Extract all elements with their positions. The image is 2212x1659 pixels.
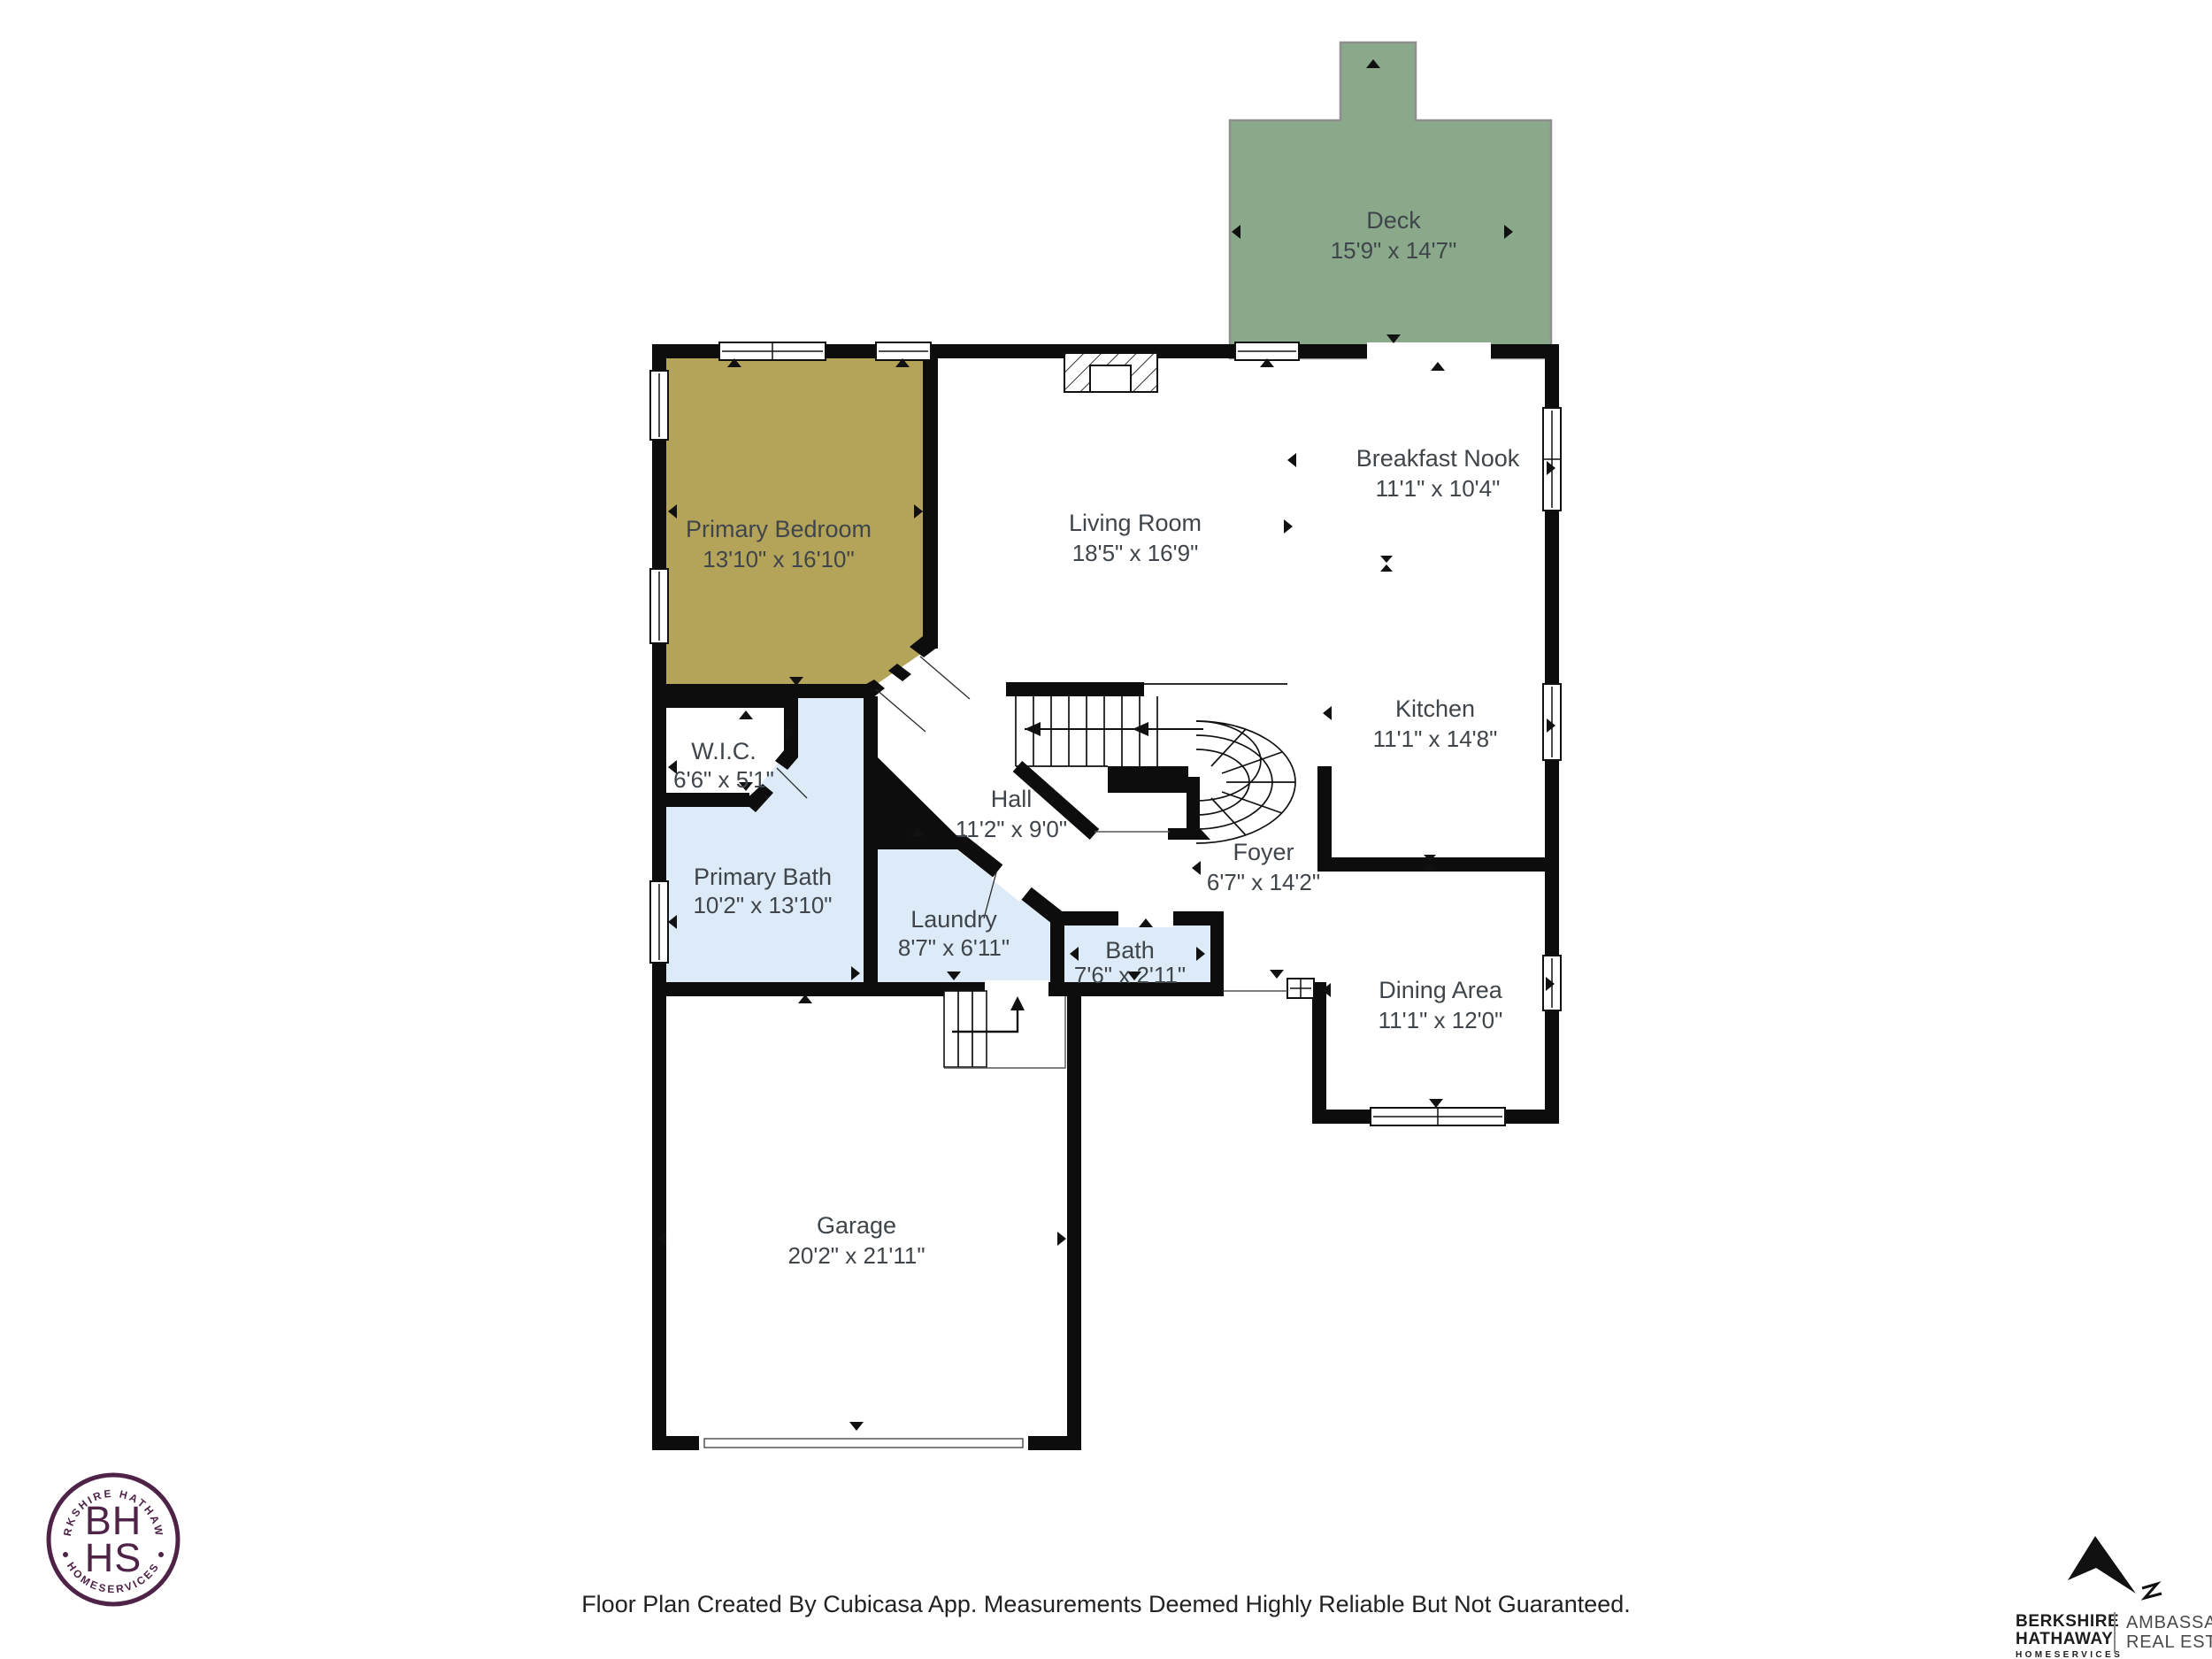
room-label-dining-area: Dining Area 11'1" x 12'0" xyxy=(1379,977,1503,1033)
room-name: Foyer xyxy=(1233,839,1294,865)
room-name: Bath xyxy=(1105,937,1155,964)
wall-stairs-top xyxy=(1006,682,1144,696)
room-name: Primary Bedroom xyxy=(686,516,872,542)
room-name: Deck xyxy=(1366,207,1421,234)
wall-garage-right xyxy=(1067,996,1081,1450)
wall-wic-top xyxy=(652,696,798,708)
brokerage-logo: BERKSHIRE HATHAWAY HOMESERVICES AMBASSAD… xyxy=(2016,1536,2212,1659)
deck-floor xyxy=(1230,42,1551,358)
bhhs-seal-dot-right xyxy=(158,1552,164,1557)
direction-marker-icon xyxy=(849,1422,864,1431)
bhhs-monogram-hs: HS xyxy=(85,1535,142,1580)
room-dims: 11'1" x 14'8" xyxy=(1373,726,1498,752)
room-dims: 18'5" x 16'9" xyxy=(1072,540,1199,566)
stairs-winder-arc-1 xyxy=(1196,721,1261,801)
brokerage-arrow-flourish-icon xyxy=(2142,1584,2162,1598)
brokerage-arrow-icon xyxy=(2068,1536,2136,1594)
wall-kitchen-dining-divider xyxy=(1317,857,1559,872)
deck-area xyxy=(1230,42,1551,358)
room-dims: 8'7" x 6'11" xyxy=(898,934,1010,961)
window-foyer-small xyxy=(1287,979,1314,998)
room-dims: 13'10" x 16'10" xyxy=(703,546,855,572)
fireplace xyxy=(1064,353,1157,392)
bhhs-seal-dot-left xyxy=(63,1552,68,1557)
svg-text:BERKSHIRE HATHAWAY: BERKSHIRE HATHAWAY xyxy=(0,0,165,1538)
stairs-arrow-icon xyxy=(1025,722,1041,736)
direction-marker-icon xyxy=(1287,453,1296,467)
direction-marker-icon xyxy=(1431,362,1445,371)
garage-entry-arrow-icon xyxy=(1010,996,1025,1010)
wall-bath-hall-divider xyxy=(864,696,878,986)
garage-door-panel xyxy=(704,1439,1023,1448)
window-primary-bath-left xyxy=(650,881,668,963)
wall-bedroom-right xyxy=(923,344,938,649)
room-name: Primary Bath xyxy=(694,864,832,890)
room-name: Garage xyxy=(817,1212,896,1239)
room-name: Living Room xyxy=(1069,510,1202,536)
room-dims: 11'2" x 9'0" xyxy=(956,816,1067,842)
room-label-foyer: Foyer 6'7" x 14'2" xyxy=(1207,839,1320,895)
brokerage-division-line2: REAL ESTATE xyxy=(2126,1632,2212,1652)
room-dims: 7'6" x 2'11" xyxy=(1074,962,1186,988)
direction-marker-icon xyxy=(1284,519,1293,534)
brokerage-name-line1: BERKSHIRE xyxy=(2016,1612,2119,1631)
room-dims: 6'6" x 5'1" xyxy=(673,766,774,793)
garage-steps-box xyxy=(944,991,987,1067)
window-bedroom-top xyxy=(719,342,826,360)
wall-stairs-foot xyxy=(1168,828,1200,840)
wall-stairs-foot-tip xyxy=(1200,828,1210,840)
wall-stairs-vertical xyxy=(1187,777,1200,837)
direction-marker-icon xyxy=(1429,1099,1443,1108)
garage-steps xyxy=(944,991,1065,1068)
wall-hall-triangle xyxy=(878,757,962,841)
floor-plan-canvas: Deck 15'9" x 14'7" Primary Bedroom 13'10… xyxy=(0,0,2212,1659)
room-dims: 10'2" x 13'10" xyxy=(693,892,832,918)
bhhs-seal-arc-top-text: BERKSHIRE HATHAWAY xyxy=(0,0,165,1538)
wall-dining-left xyxy=(1312,982,1326,1124)
room-dims: 15'9" x 14'7" xyxy=(1331,237,1457,264)
direction-marker-icon xyxy=(1057,1232,1066,1246)
bhhs-seal-logo: BH HS BERKSHIRE HATHAWAY HOMESERVICES xyxy=(0,0,178,1604)
room-label-garage: Garage 20'2" x 21'11" xyxy=(787,1212,925,1269)
room-dims: 6'7" x 14'2" xyxy=(1207,869,1320,895)
wall-bedroom-bottom xyxy=(652,684,875,698)
floor-plan-page: Deck 15'9" x 14'7" Primary Bedroom 13'10… xyxy=(0,0,2212,1659)
room-dims: 11'1" x 12'0" xyxy=(1379,1007,1503,1033)
wall-laundry-top xyxy=(878,835,962,849)
room-name: Kitchen xyxy=(1395,695,1475,722)
room-name: W.I.C. xyxy=(691,738,757,764)
window-bedroom-left-1 xyxy=(650,371,668,440)
disclaimer-text: Floor Plan Created By Cubicasa App. Meas… xyxy=(581,1591,1631,1617)
garage-entry-opening xyxy=(985,980,1048,998)
room-dims: 11'1" x 10'4" xyxy=(1376,475,1501,502)
stairs-arrow-icon xyxy=(1133,722,1148,736)
wall-wic-bottom xyxy=(652,793,749,807)
window-living-deck xyxy=(1235,342,1299,360)
room-name: Breakfast Nook xyxy=(1356,445,1520,472)
fireplace-firebox xyxy=(1090,365,1131,392)
brokerage-name-line2: HATHAWAY xyxy=(2016,1630,2113,1648)
brokerage-name-line3: HOMESERVICES xyxy=(2016,1650,2123,1659)
room-name: Dining Area xyxy=(1379,977,1503,1003)
window-bedroom-left-2 xyxy=(650,569,668,643)
room-dims: 20'2" x 21'11" xyxy=(787,1242,925,1269)
direction-marker-icon xyxy=(1323,706,1332,720)
window-kitchen-right xyxy=(1543,684,1561,760)
room-label-breakfast-nook: Breakfast Nook 11'1" x 10'4" xyxy=(1356,445,1520,502)
wall-stairs-block xyxy=(1108,766,1188,793)
window-breakfast-right xyxy=(1543,408,1561,511)
wall-kitchen-peninsula-vertical xyxy=(1317,766,1332,872)
room-name: Laundry xyxy=(910,906,997,933)
direction-marker-icon xyxy=(1380,565,1393,572)
room-name: Hall xyxy=(991,786,1033,812)
room-label-living-room: Living Room 18'5" x 16'9" xyxy=(1069,510,1202,566)
deck-door-opening xyxy=(1367,342,1491,360)
room-label-kitchen: Kitchen 11'1" x 14'8" xyxy=(1373,695,1498,752)
direction-marker-icon xyxy=(1192,861,1201,875)
brokerage-division-line1: AMBASSADOR xyxy=(2126,1613,2212,1632)
window-living-top xyxy=(876,342,931,360)
direction-marker-icon xyxy=(1270,970,1284,979)
direction-marker-icon xyxy=(1380,556,1393,563)
window-dining-bottom xyxy=(1371,1108,1505,1125)
